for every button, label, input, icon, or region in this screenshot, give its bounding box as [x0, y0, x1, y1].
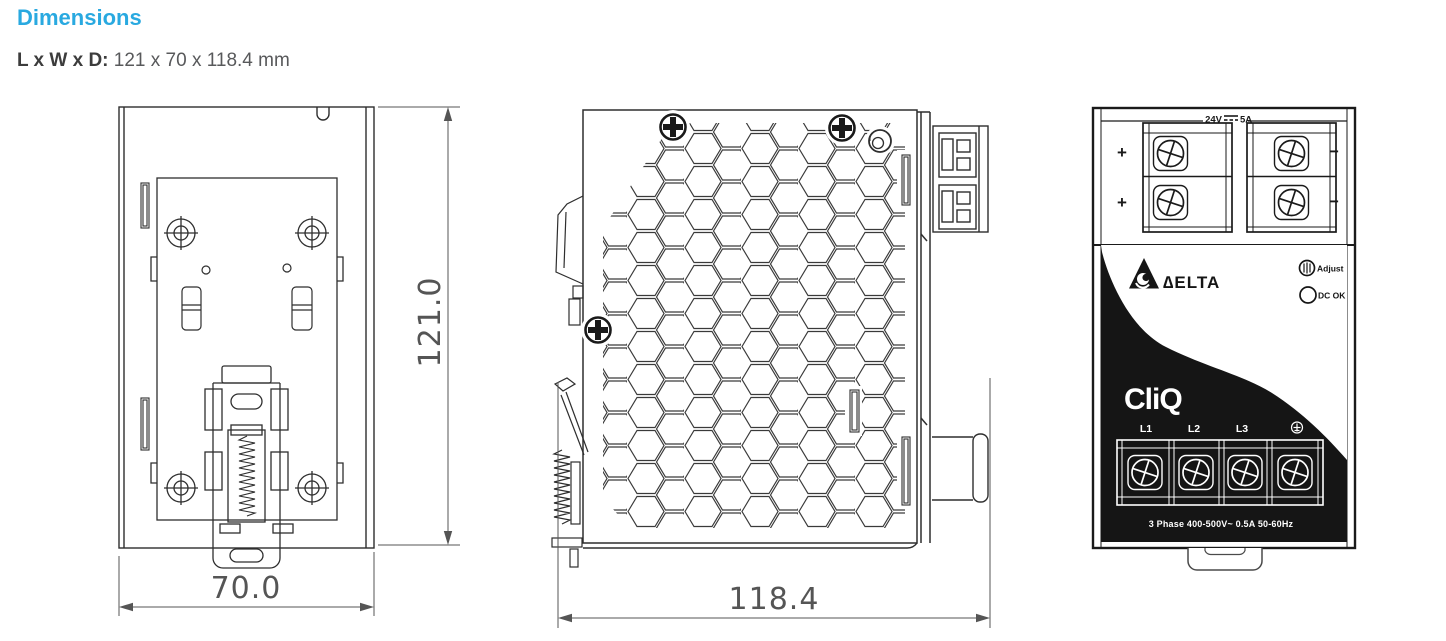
mounting-plate	[151, 178, 343, 520]
size-label: L x W x D:	[17, 50, 109, 71]
side-slots	[141, 183, 149, 450]
screw-icon	[830, 116, 855, 141]
input-label-l2: L2	[1188, 423, 1200, 435]
clip-spring	[239, 436, 255, 516]
front-knob-side	[932, 434, 988, 502]
size-value: 121 x 70 x 118.4 mm	[114, 50, 290, 71]
hex-vent-pattern	[603, 123, 905, 528]
input-rating-text: 3 Phase 400-500V~ 0.5A 50-60Hz	[1149, 519, 1294, 529]
clip-spring-side	[554, 450, 570, 524]
width-dimension-value: 70.0	[211, 571, 282, 606]
adjust-indicator: Adjust	[1300, 261, 1344, 276]
height-dimension-value: 121.0	[413, 277, 448, 368]
side-view-drawing: 118.4	[540, 90, 1010, 635]
screw-icon	[586, 318, 611, 343]
din-rail-clip	[205, 366, 293, 568]
page-title: Dimensions	[17, 5, 142, 31]
plus-mark: +	[1117, 193, 1127, 212]
height-dimension: 121.0	[378, 107, 460, 545]
din-tab-bottom	[1188, 548, 1262, 570]
minus-mark: −	[1329, 142, 1339, 161]
latch-sliders	[182, 287, 312, 330]
output-connector-side	[933, 126, 988, 232]
pilot-holes	[202, 264, 291, 274]
brand-wordmark: ∆ELTA	[1163, 273, 1220, 292]
dc-ok-led-icon	[1300, 287, 1316, 303]
front-view-drawing: 24V 5A	[1085, 100, 1365, 580]
series-logo: CliQ	[1124, 383, 1182, 416]
plus-mark: +	[1117, 143, 1127, 162]
top-notch	[317, 107, 329, 120]
screw-icon	[661, 115, 686, 140]
depth-dimension-value: 118.4	[729, 582, 820, 617]
dimensions-page: Dimensions L x W x D: 121 x 70 x 118.4 m…	[0, 0, 1446, 641]
dc-ok-label: DC OK	[1318, 291, 1346, 301]
mount-screw-holes	[164, 216, 329, 505]
input-label-l3: L3	[1236, 423, 1248, 435]
minus-mark: −	[1329, 192, 1339, 211]
adjust-label: Adjust	[1317, 264, 1344, 274]
size-spec-line: L x W x D: 121 x 70 x 118.4 mm	[17, 50, 290, 72]
back-view-drawing: 121.0 70.0	[100, 90, 510, 635]
input-label-l1: L1	[1140, 423, 1152, 435]
